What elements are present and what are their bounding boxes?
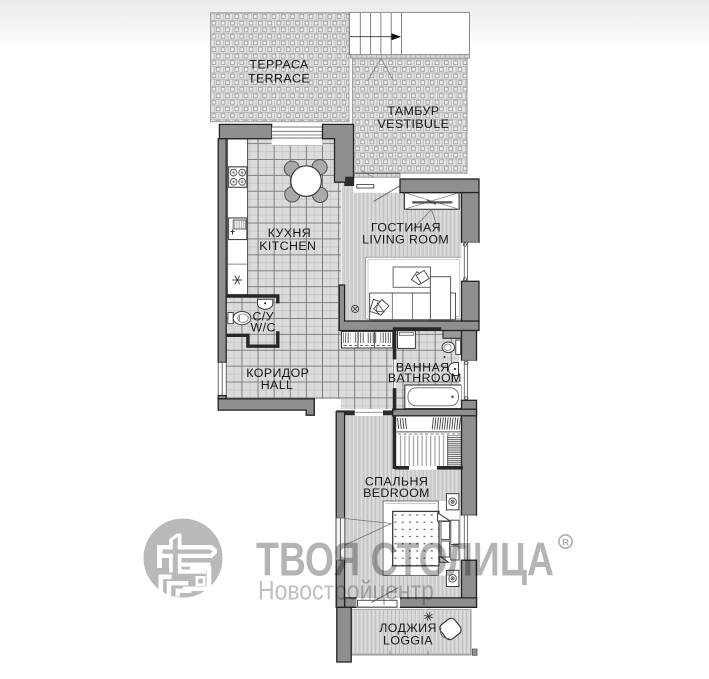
svg-text:TERRACE: TERRACE [248, 71, 310, 85]
svg-text:BEDROOM: BEDROOM [363, 486, 430, 500]
svg-text:LIVING ROOM: LIVING ROOM [362, 232, 449, 246]
svg-text:HALL: HALL [261, 378, 294, 392]
svg-text:Новостройцентр: Новостройцентр [258, 576, 434, 606]
svg-text:KITCHEN: KITCHEN [259, 239, 316, 253]
svg-text:W/C: W/C [251, 321, 276, 335]
svg-text:VESTIBULE: VESTIBULE [378, 117, 450, 131]
svg-text:LOGGIA: LOGGIA [383, 633, 433, 647]
svg-text:BATHROOM: BATHROOM [388, 371, 462, 385]
svg-text:ТЕРРАСА: ТЕРРАСА [249, 58, 309, 72]
svg-text:R: R [562, 537, 569, 548]
